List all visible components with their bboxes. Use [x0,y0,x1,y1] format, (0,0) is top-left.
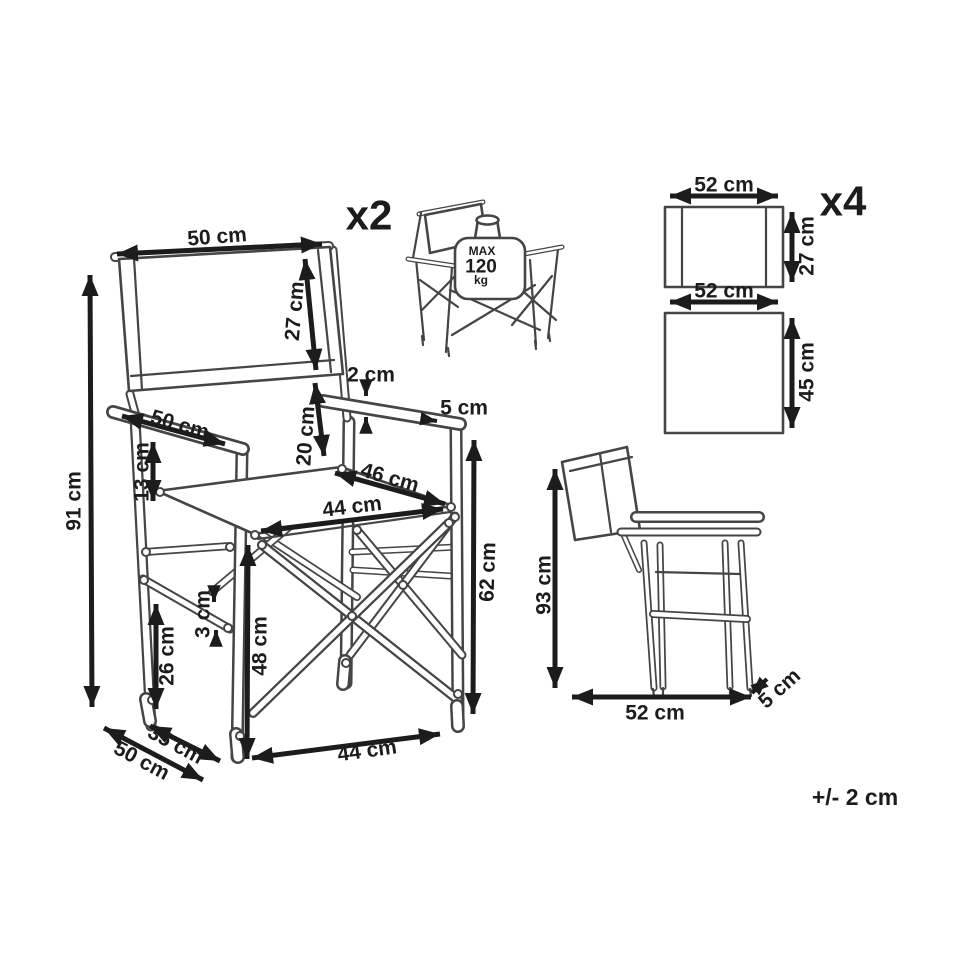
fabric-quantity-label: x4 [820,178,867,225]
dim-folded-width-label: 52 cm [625,701,685,724]
dim-back-to-seat-label: 20 cm [292,406,319,467]
dim-base-width-label: 44 cm [336,735,398,766]
mini-foot [535,341,536,349]
dim-fabric-seat-height: 45 cm [792,318,818,428]
main-quantity-label: x2 [346,192,393,239]
dim-armrest-thickness-label: 2 cm [347,363,395,386]
dim-fabric-seat-width-label: 52 cm [694,279,754,302]
dim-seat-height-label: 48 cm [248,616,271,676]
dim-armrest-height: 62 cm [473,440,500,714]
dim-arrow [473,440,474,714]
dim-fabric-back-height: 27 cm [792,212,818,282]
dim-arrow [90,275,92,707]
dim-armrest-length-label: 50 cm [148,406,212,445]
dim-fabric-seat-height-label: 45 cm [795,342,818,402]
dim-stretcher-height-label: 26 cm [155,626,178,686]
mini-leg [548,249,558,338]
dim-seat-height: 48 cm [247,545,271,759]
folded-chair-drawing [562,447,759,696]
dim-arrow [423,419,437,421]
dim-folded-depth: 5 cm [752,664,805,713]
mini-leg [416,259,424,340]
dim-armrest-height-label: 62 cm [475,542,500,602]
mini-back-post [413,213,421,258]
max-load-chair: MAX 120 kg [408,202,562,356]
max-load-line3: kg [474,273,488,287]
dim-back-width-label: 50 cm [186,223,247,251]
dim-armrest-to-seat: 13 cm [130,442,153,502]
dim-total-height-label: 91 cm [62,471,85,531]
weight-cap [477,216,499,225]
dim-base-width: 44 cm [252,734,440,766]
dim-armrest-to-seat-label: 13 cm [130,442,153,502]
product-dimension-diagram: 50 cm 27 cm 91 cm 50 cm 13 cm 2 cm 20 cm [0,0,960,960]
dim-folded-depth-label: 5 cm [754,664,805,713]
mini-foot [422,336,423,345]
dim-fabric-back-width-label: 52 cm [694,173,754,196]
dim-folded-width: 52 cm [572,697,751,724]
fabric-pieces: 52 cm 27 cm 52 cm 45 cm x4 [665,173,867,433]
dim-stretcher-thickness-label: 3 cm [191,590,214,638]
dim-fabric-back-width: 52 cm [670,173,778,196]
dim-stretcher-height: 26 cm [155,604,178,709]
dim-armrest-width-label: 5 cm [440,396,488,419]
dim-stretcher-thickness: 3 cm [191,590,216,642]
tolerance-note: +/- 2 cm [812,784,898,810]
dim-folded-height: 93 cm [532,469,555,688]
mini-foot [448,348,449,356]
dim-folded-height-label: 93 cm [532,555,555,615]
dim-fabric-back-height-label: 27 cm [795,216,818,276]
dim-total-height: 91 cm [62,275,92,707]
mini-foot [549,334,550,341]
fabric-seat-panel [665,313,783,433]
diagram-canvas: 50 cm 27 cm 91 cm 50 cm 13 cm 2 cm 20 cm [0,0,960,960]
